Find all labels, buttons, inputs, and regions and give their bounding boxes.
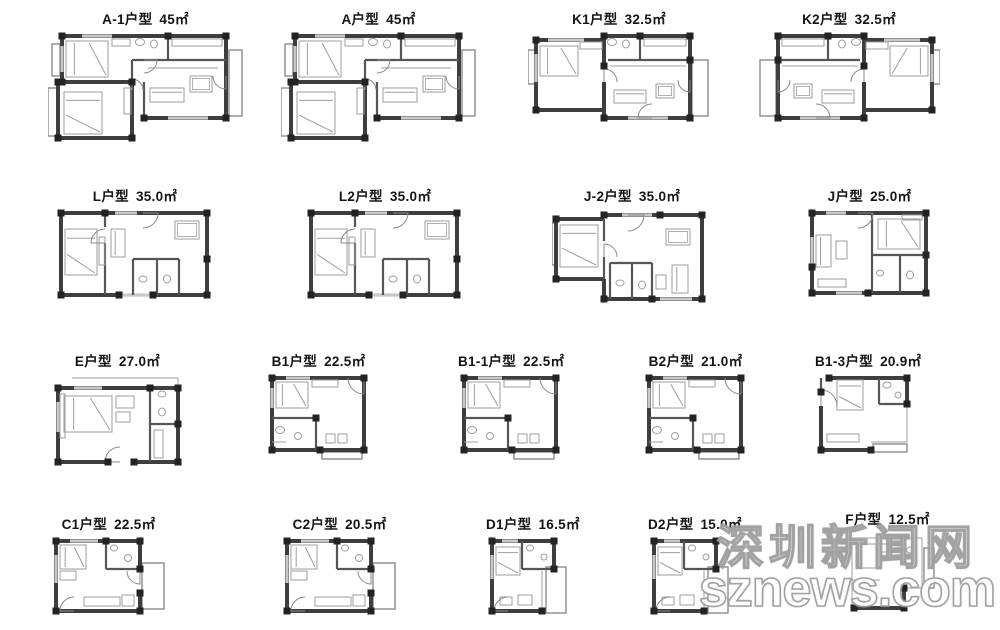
plan-name: J户型 xyxy=(828,189,863,204)
plan-label: B2户型21.0㎡ xyxy=(643,350,748,370)
plan-label: K2户型32.5㎡ xyxy=(758,8,940,28)
floor-plan: D2户型15.0㎡ xyxy=(648,513,730,617)
plan-name: B2户型 xyxy=(649,354,694,369)
floor-plan-drawing xyxy=(815,372,915,457)
floor-plan-drawing xyxy=(458,372,563,460)
floor-plan: A户型45㎡ xyxy=(281,8,476,142)
floor-plan: L2户型35.0㎡ xyxy=(305,185,465,302)
plan-label: B1-3户型20.9㎡ xyxy=(815,350,915,370)
floor-plan-drawing xyxy=(48,30,243,142)
plan-area: 27.0㎡ xyxy=(119,354,160,369)
floor-plan-drawing xyxy=(50,535,167,617)
plan-name: K1户型 xyxy=(572,12,617,27)
floor-plan-drawing xyxy=(552,207,712,307)
plan-name: J-2户型 xyxy=(584,189,632,204)
floor-plan: E户型27.0㎡ xyxy=(50,350,185,467)
plan-name: B1-3户型 xyxy=(815,354,873,369)
floor-plan: B2户型21.0㎡ xyxy=(643,350,748,460)
plan-label: A户型45㎡ xyxy=(281,8,476,28)
plan-label: B1-1户型22.5㎡ xyxy=(458,350,563,370)
plan-area: 22.5㎡ xyxy=(114,517,155,532)
plan-area: 21.0㎡ xyxy=(701,354,742,369)
plan-name: C2户型 xyxy=(293,517,338,532)
plan-area: 15.0㎡ xyxy=(700,517,741,532)
floor-plan: B1-3户型20.9㎡ xyxy=(815,350,915,457)
plan-label: F户型12.5㎡ xyxy=(840,508,935,528)
plan-area: 20.5㎡ xyxy=(345,517,386,532)
plan-area: 22.5㎡ xyxy=(324,354,365,369)
plan-name: C1户型 xyxy=(62,517,107,532)
plan-name: L2户型 xyxy=(339,189,383,204)
plan-label: A-1户型45㎡ xyxy=(48,8,243,28)
plan-area: 32.5㎡ xyxy=(625,12,666,27)
plan-area: 22.5㎡ xyxy=(523,354,564,369)
plan-label: D1户型16.5㎡ xyxy=(486,513,568,533)
plan-name: K2户型 xyxy=(802,12,847,27)
floor-plan-drawing xyxy=(50,372,185,467)
plan-area: 20.9㎡ xyxy=(880,354,921,369)
floor-plan: C2户型20.5㎡ xyxy=(281,513,398,617)
floor-plan: L户型35.0㎡ xyxy=(55,185,215,302)
floor-plan: C1户型22.5㎡ xyxy=(50,513,167,617)
floor-plan-drawing xyxy=(55,207,215,302)
plan-area: 35.0㎡ xyxy=(639,189,680,204)
floor-plan-drawing xyxy=(305,207,465,302)
floor-plan-drawing xyxy=(648,535,730,617)
floor-plan-sheet: A-1户型45㎡ A户型45㎡ K1户型32.5㎡ K2户型32.5㎡ L户型3… xyxy=(0,0,1000,630)
plan-name: D2户型 xyxy=(648,517,693,532)
plan-label: E户型27.0㎡ xyxy=(50,350,185,370)
plan-area: 16.5㎡ xyxy=(538,517,579,532)
plan-area: 35.0㎡ xyxy=(390,189,431,204)
plan-label: B1户型22.5㎡ xyxy=(266,350,371,370)
floor-plan: D1户型16.5㎡ xyxy=(486,513,568,617)
plan-name: A-1户型 xyxy=(102,12,152,27)
floor-plan: B1户型22.5㎡ xyxy=(266,350,371,460)
floor-plan-drawing xyxy=(806,207,933,299)
plan-area: 12.5㎡ xyxy=(888,512,929,527)
plan-name: F户型 xyxy=(845,512,881,527)
floor-plan: K2户型32.5㎡ xyxy=(758,8,940,122)
plan-label: J户型25.0㎡ xyxy=(806,185,933,205)
floor-plan-drawing xyxy=(840,530,935,625)
floor-plan-drawing xyxy=(281,30,476,142)
plan-label: J-2户型35.0㎡ xyxy=(552,185,712,205)
plan-label: C2户型20.5㎡ xyxy=(281,513,398,533)
plan-label: D2户型15.0㎡ xyxy=(648,513,730,533)
floor-plan: J-2户型35.0㎡ xyxy=(552,185,712,307)
floor-plan-drawing xyxy=(528,30,710,122)
plan-name: B1户型 xyxy=(272,354,317,369)
plan-name: D1户型 xyxy=(486,517,531,532)
plan-area: 25.0㎡ xyxy=(870,189,911,204)
plan-label: L户型35.0㎡ xyxy=(55,185,215,205)
plan-name: L户型 xyxy=(93,189,129,204)
plan-name: E户型 xyxy=(75,354,112,369)
plan-area: 45㎡ xyxy=(159,12,188,27)
plan-name: A户型 xyxy=(341,12,379,27)
plan-name: B1-1户型 xyxy=(458,354,516,369)
plan-area: 45㎡ xyxy=(386,12,415,27)
floor-plan: F户型12.5㎡ xyxy=(840,508,935,625)
floor-plan-drawing xyxy=(643,372,748,460)
plan-area: 35.0㎡ xyxy=(136,189,177,204)
floor-plan-drawing xyxy=(266,372,371,460)
floor-plan: B1-1户型22.5㎡ xyxy=(458,350,563,460)
floor-plan-drawing xyxy=(281,535,398,617)
floor-plan: K1户型32.5㎡ xyxy=(528,8,710,122)
plan-label: L2户型35.0㎡ xyxy=(305,185,465,205)
floor-plan-drawing xyxy=(486,535,568,617)
floor-plan-drawing xyxy=(758,30,940,122)
plan-area: 32.5㎡ xyxy=(855,12,896,27)
floor-plan: A-1户型45㎡ xyxy=(48,8,243,142)
plan-label: K1户型32.5㎡ xyxy=(528,8,710,28)
floor-plan: J户型25.0㎡ xyxy=(806,185,933,299)
plan-label: C1户型22.5㎡ xyxy=(50,513,167,533)
